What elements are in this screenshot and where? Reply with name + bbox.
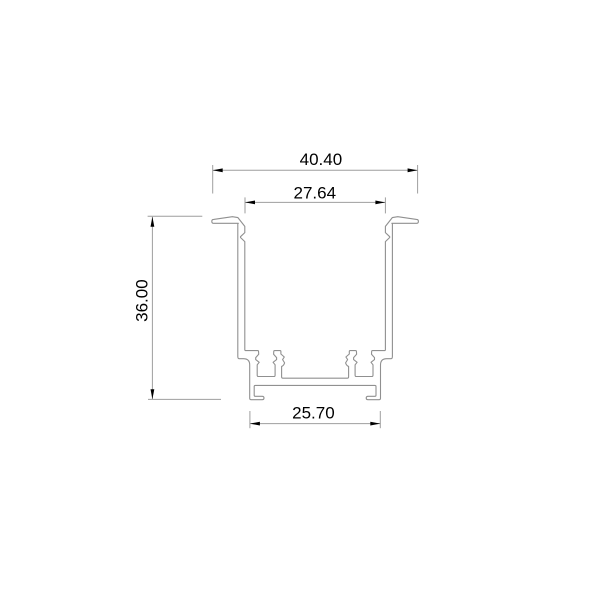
svg-text:40.40: 40.40 xyxy=(300,150,343,169)
svg-text:25.70: 25.70 xyxy=(292,403,335,422)
svg-text:27.64: 27.64 xyxy=(294,183,337,202)
svg-text:36.00: 36.00 xyxy=(133,279,152,322)
